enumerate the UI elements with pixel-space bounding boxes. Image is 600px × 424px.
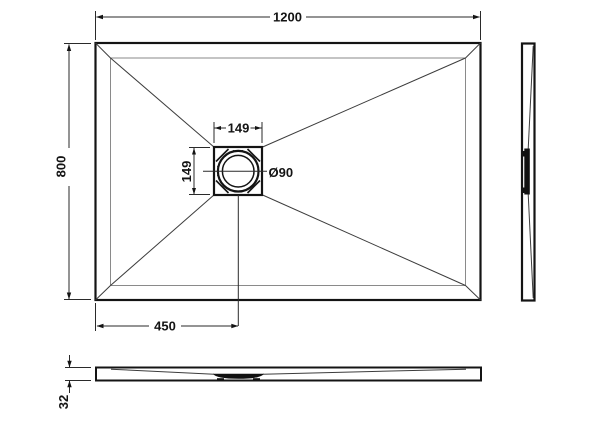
dim-text-width: 1200 xyxy=(273,10,302,25)
plan-crease-bottom-right xyxy=(262,195,466,286)
arrow-149h-right xyxy=(255,126,262,130)
dim-text-drain-width: 149 xyxy=(228,121,250,136)
dim-text-drain-height: 149 xyxy=(179,161,194,183)
dim-text-drain-offset: 450 xyxy=(154,319,176,334)
plan-view xyxy=(96,43,481,326)
drawing-canvas: 1200 800 450 149 149 Ø90 xyxy=(0,0,600,424)
arrow-149v-bottom xyxy=(192,188,196,195)
arrow-800-bottom xyxy=(67,293,71,300)
arrow-1200-right xyxy=(473,15,480,19)
front-drain-foot-left xyxy=(217,378,224,380)
dimension-thickness-32 xyxy=(65,355,91,393)
arrow-450-right xyxy=(231,324,238,328)
front-view xyxy=(96,368,481,381)
technical-drawing-shower-tray: 1200 800 450 149 149 Ø90 xyxy=(0,0,600,424)
arrow-1200-left xyxy=(96,15,103,19)
plan-crease-top-left xyxy=(111,58,215,148)
arrow-32-down xyxy=(67,361,71,368)
plan-crease-bottom-left xyxy=(111,195,215,286)
front-drain-foot-right xyxy=(253,378,260,380)
arrow-800-top xyxy=(67,44,71,51)
side-view xyxy=(522,44,535,301)
arrow-32-up xyxy=(67,381,71,388)
dim-text-thickness: 32 xyxy=(56,395,71,409)
arrow-149v-top xyxy=(192,148,196,155)
arrow-450-left xyxy=(97,324,104,328)
dim-text-drain-diameter: Ø90 xyxy=(269,165,294,180)
plan-chamfer-bottom-right xyxy=(466,286,481,301)
plan-chamfer-top-right xyxy=(466,43,481,58)
dim-text-height: 800 xyxy=(54,156,69,178)
plan-chamfer-top-left xyxy=(96,43,111,58)
plan-chamfer-bottom-left xyxy=(96,286,111,301)
arrow-149h-left xyxy=(215,126,222,130)
plan-crease-top-right xyxy=(262,58,466,148)
